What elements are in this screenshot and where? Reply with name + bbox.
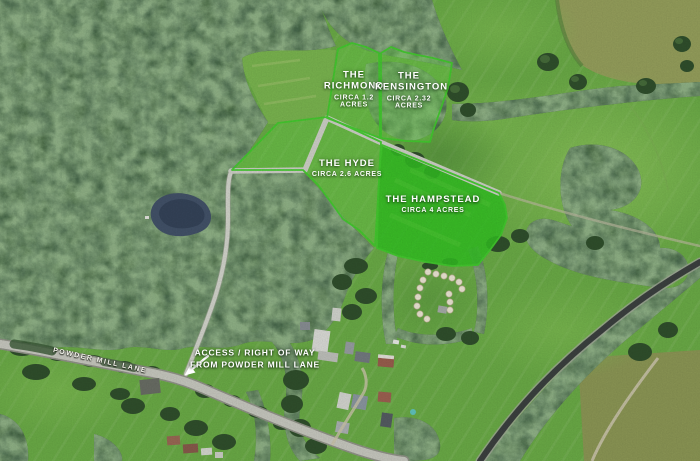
access-note: ACCESS / RIGHT OF WAY FROM POWDER MILL L… bbox=[190, 348, 320, 371]
access-note-line1: ACCESS / RIGHT OF WAY bbox=[195, 348, 316, 358]
grain-overlay bbox=[0, 0, 700, 461]
access-note-line2: FROM POWDER MILL LANE bbox=[190, 359, 320, 369]
aerial-plot-map: THE RICHMOND CIRCA 1.2 ACRES THE KENSING… bbox=[0, 0, 700, 461]
satellite-photo bbox=[0, 0, 700, 461]
